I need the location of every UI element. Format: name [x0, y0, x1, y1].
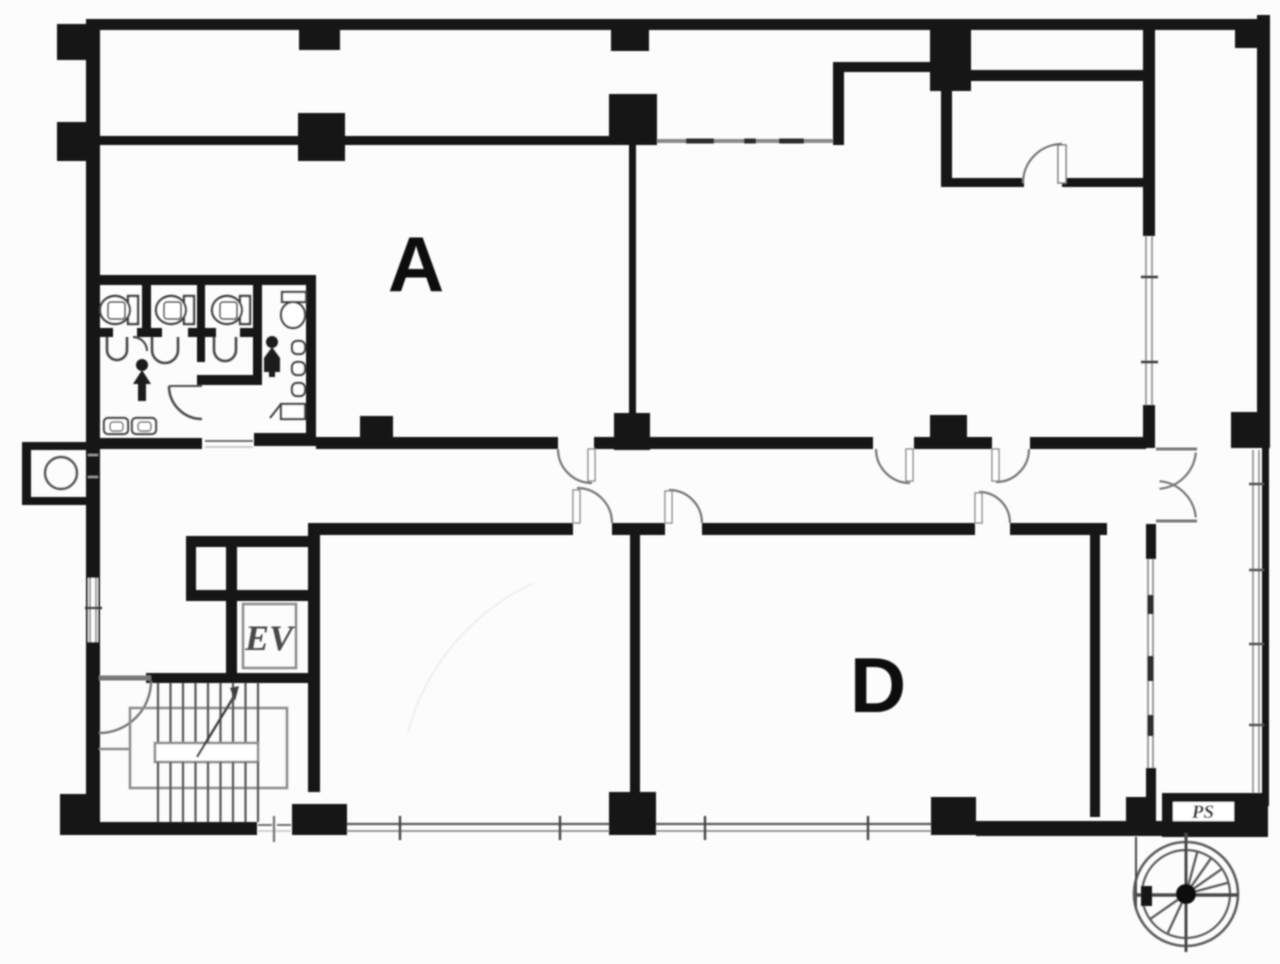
svg-text:EV: EV	[244, 618, 296, 658]
svg-text:A: A	[388, 220, 444, 308]
svg-text:PS: PS	[1191, 802, 1214, 823]
svg-text:D: D	[850, 641, 906, 729]
